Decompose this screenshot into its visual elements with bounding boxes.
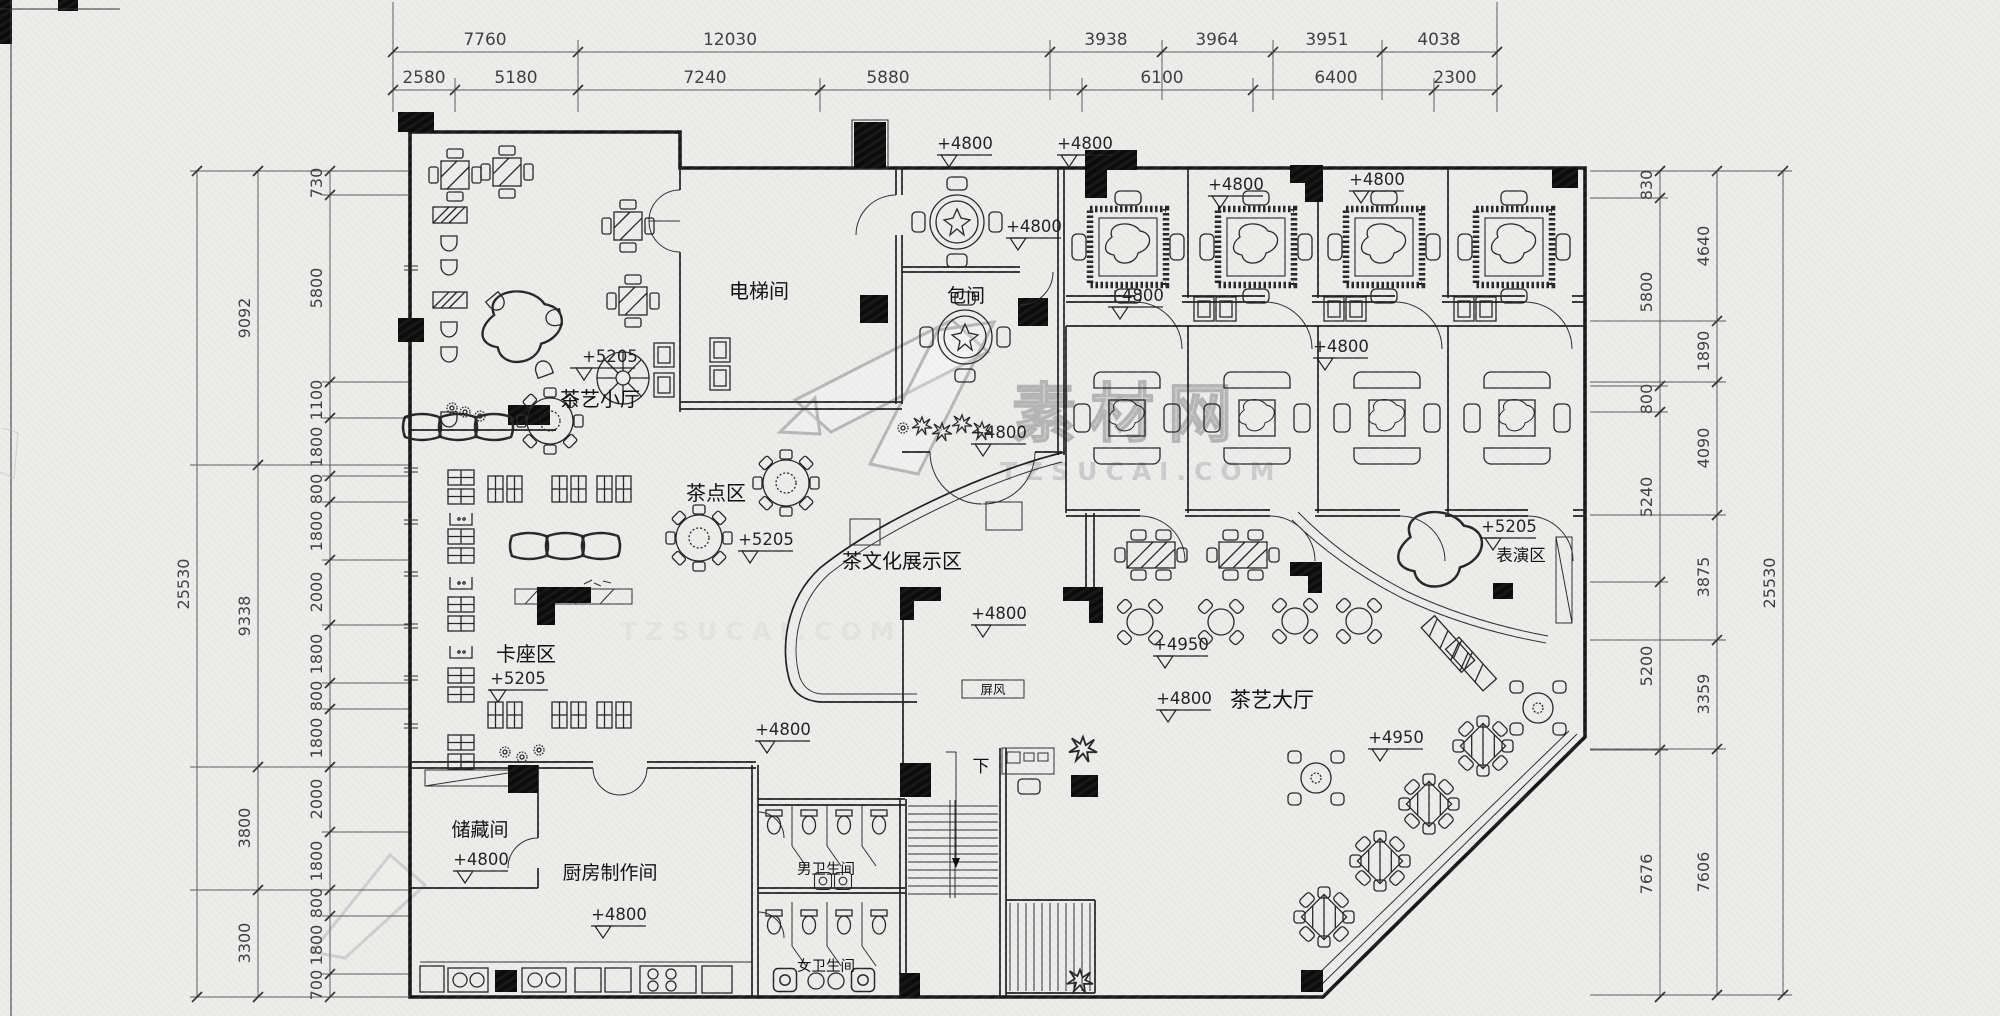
svg-text:25530: 25530 <box>1760 558 1779 609</box>
svg-text:+4800: +4800 <box>755 720 811 739</box>
svg-text:800: 800 <box>307 474 326 505</box>
svg-text:7676: 7676 <box>1637 854 1656 895</box>
svg-text:3964: 3964 <box>1195 30 1238 50</box>
svg-text:+4950: +4950 <box>1368 728 1424 747</box>
svg-text:+4800: +4800 <box>1156 689 1212 708</box>
stair-direction-label: 下 <box>973 757 990 777</box>
room-labels: 茶艺小厅 电梯间 包间 茶点区 茶文化展示区 卡座区 储藏间 厨房制作间 男卫生… <box>451 279 1545 975</box>
room-label-women-wc: 女卫生间 <box>797 957 855 975</box>
svg-text:800: 800 <box>307 888 326 919</box>
svg-text:7606: 7606 <box>1694 852 1713 893</box>
svg-text:1100: 1100 <box>307 380 326 421</box>
svg-text:3800: 3800 <box>235 808 254 849</box>
svg-text:+4800: +4800 <box>1006 217 1062 236</box>
room-label-tea-art-small: 茶艺小厅 <box>560 387 640 411</box>
svg-text:12030: 12030 <box>703 30 757 50</box>
svg-text:730: 730 <box>307 168 326 199</box>
room-label-screen: 屏风 <box>980 682 1006 697</box>
svg-text:800: 800 <box>1637 384 1656 415</box>
svg-text:800: 800 <box>307 681 326 712</box>
svg-text:700: 700 <box>307 970 326 1001</box>
svg-text:9092: 9092 <box>235 298 254 339</box>
svg-text:1800: 1800 <box>307 718 326 759</box>
svg-text:2580: 2580 <box>402 68 445 88</box>
room-label-stage: 表演区 <box>1496 546 1546 565</box>
svg-text:5880: 5880 <box>866 68 909 88</box>
svg-text:25530: 25530 <box>174 559 193 610</box>
dimension-right: 830 5800 800 5240 5200 7676 4640 1890 40… <box>1590 166 1792 1002</box>
svg-text:9338: 9338 <box>235 596 254 637</box>
staircase: 下 <box>908 748 1090 991</box>
svg-text:3300: 3300 <box>235 923 254 964</box>
room-label-storage: 储藏间 <box>451 819 508 841</box>
svg-text:+5205: +5205 <box>582 347 638 366</box>
room-label-tea-snack: 茶点区 <box>686 481 746 505</box>
svg-text:6100: 6100 <box>1140 68 1183 88</box>
svg-text:+4800: +4800 <box>971 423 1027 442</box>
svg-text:3951: 3951 <box>1305 30 1348 50</box>
svg-text:+4800: +4800 <box>1313 337 1369 356</box>
svg-text:3938: 3938 <box>1084 30 1127 50</box>
svg-text:5800: 5800 <box>307 268 326 309</box>
svg-text:+4800: +4800 <box>971 604 1027 623</box>
svg-text:4090: 4090 <box>1694 428 1713 469</box>
svg-text:+4800: +4800 <box>453 850 509 869</box>
watermark-url-text: TZSUCAI.COM <box>1000 457 1282 486</box>
svg-text:1800: 1800 <box>307 925 326 966</box>
svg-text:5180: 5180 <box>494 68 537 88</box>
svg-text:2000: 2000 <box>307 572 326 613</box>
svg-text:+5205: +5205 <box>738 530 794 549</box>
room-label-elevator: 电梯间 <box>729 279 789 303</box>
floor-plan-canvas: 素材网 TZSUCAI.COM TZSUCAI.COM 7760 12030 3… <box>0 0 2000 1016</box>
svg-text:830: 830 <box>1637 170 1656 201</box>
svg-text:+4800: +4800 <box>1108 286 1164 305</box>
sheet-edge <box>0 0 120 1016</box>
svg-text:1800: 1800 <box>307 841 326 882</box>
svg-text:2300: 2300 <box>1433 68 1476 88</box>
svg-text:+4800: +4800 <box>591 905 647 924</box>
svg-text:2000: 2000 <box>307 779 326 820</box>
svg-text:4038: 4038 <box>1417 30 1460 50</box>
svg-text:3875: 3875 <box>1694 557 1713 598</box>
cad-floor-plan-page: 素材网 TZSUCAI.COM TZSUCAI.COM 7760 12030 3… <box>0 0 2000 1016</box>
svg-text:7240: 7240 <box>683 68 726 88</box>
svg-text:7760: 7760 <box>463 30 506 50</box>
room-label-kitchen: 厨房制作间 <box>562 862 657 884</box>
room-label-tea-culture: 茶文化展示区 <box>842 549 962 573</box>
room-label-private-room: 包间 <box>947 285 985 307</box>
dimension-top: 7760 12030 3938 3964 3951 4038 2580 5180… <box>388 2 1502 112</box>
room-label-booth: 卡座区 <box>496 642 556 666</box>
svg-text:+4800: +4800 <box>1349 170 1405 189</box>
svg-text:+4800: +4800 <box>1208 175 1264 194</box>
svg-text:TZSUCAI.COM: TZSUCAI.COM <box>620 617 902 646</box>
svg-text:+4800: +4800 <box>1057 134 1113 153</box>
room-label-men-wc: 男卫生间 <box>797 861 855 878</box>
svg-text:3359: 3359 <box>1694 674 1713 715</box>
svg-text:5240: 5240 <box>1637 477 1656 518</box>
svg-text:+4800: +4800 <box>937 134 993 153</box>
svg-text:1800: 1800 <box>307 511 326 552</box>
svg-text:+4950: +4950 <box>1153 635 1209 654</box>
svg-text:5200: 5200 <box>1637 646 1656 687</box>
room-label-tea-hall: 茶艺大厅 <box>1230 688 1314 712</box>
svg-text:4640: 4640 <box>1694 226 1713 267</box>
svg-text:+5205: +5205 <box>1481 517 1537 536</box>
svg-text:+5205: +5205 <box>490 669 546 688</box>
svg-text:6400: 6400 <box>1314 68 1357 88</box>
svg-text:1800: 1800 <box>307 427 326 468</box>
svg-text:1890: 1890 <box>1694 331 1713 372</box>
watermark-cn-text: 素材网 <box>1012 378 1246 452</box>
svg-text:5800: 5800 <box>1637 272 1656 313</box>
svg-text:1800: 1800 <box>307 634 326 675</box>
